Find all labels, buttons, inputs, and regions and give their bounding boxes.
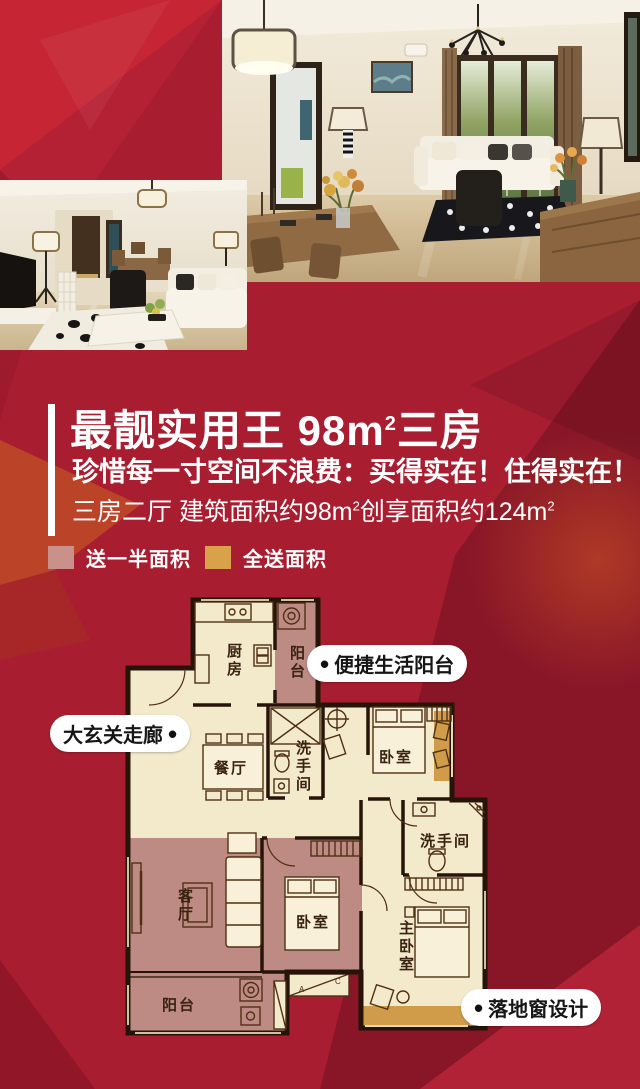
room-label-balcony-bottom: 阳台: [162, 997, 196, 1015]
legend-label: 送一半面积: [86, 543, 191, 572]
room-label-living: 客厅: [175, 888, 193, 924]
spec-line: 三房二厅 建筑面积约98m2创享面积约124m2: [72, 492, 555, 528]
room-label-bedroom-1: 卧室: [379, 749, 413, 767]
air-conditioner: [405, 44, 427, 56]
photo-large-illustration: [222, 0, 640, 282]
photo-living-dining-room: [222, 0, 640, 282]
callout-life-balcony: • 便捷生活阳台: [307, 645, 467, 682]
ac-letter: C: [335, 977, 341, 986]
half-gift-swatch: [48, 546, 74, 569]
entry-door: [72, 216, 100, 278]
page-title: 最靓实用王 98m2三房: [70, 397, 483, 458]
title-accent-bar: [48, 404, 55, 536]
balcony-bottom-area: [128, 972, 287, 1033]
room-label-bath-2: 洗手间: [420, 833, 471, 851]
legend-item-full-gift: 全送面积: [205, 543, 327, 572]
legend-label: 全送面积: [243, 543, 327, 572]
real-estate-poster: 最靓实用王 98m2三房 珍惜每一寸空间不浪费：买得实在！住得实在！ 三房二厅 …: [0, 0, 640, 1089]
callout-entry-hallway: 大玄关走廊 •: [50, 715, 190, 752]
room-label-balcony-top: 阳台: [287, 645, 305, 681]
full-gift-swatch: [205, 546, 231, 569]
room-label-kitchen: 厨房: [224, 643, 242, 679]
callout-text: 便捷生活阳台: [334, 649, 454, 678]
photo-small-illustration: [0, 180, 247, 350]
bullet-icon: •: [474, 998, 483, 1018]
white-sofa-small: [166, 268, 247, 328]
callout-text: 大玄关走廊: [63, 719, 163, 748]
callout-floor-window: • 落地窗设计: [461, 989, 601, 1026]
subtitle: 珍惜每一寸空间不浪费：买得实在！住得实在！: [72, 450, 639, 489]
room-label-master-bedroom: 主卧室: [396, 920, 414, 974]
room-label-dining: 餐厅: [214, 760, 248, 778]
wall-painting: [372, 62, 412, 92]
callout-text: 落地窗设计: [488, 993, 588, 1022]
dark-armchair: [456, 170, 502, 226]
bullet-icon: •: [320, 654, 329, 674]
legend: 送一半面积 全送面积: [48, 543, 327, 572]
legend-item-half-gift: 送一半面积: [48, 543, 191, 572]
bullet-icon: •: [168, 724, 177, 744]
floor-window-master: [363, 1006, 470, 1028]
tv: [0, 252, 36, 312]
room-label-bedroom-2: 卧室: [296, 914, 330, 932]
photo-living-room: [0, 180, 247, 350]
room-label-bath-1: 洗手间: [293, 740, 311, 794]
ac-letter: A: [299, 985, 305, 994]
